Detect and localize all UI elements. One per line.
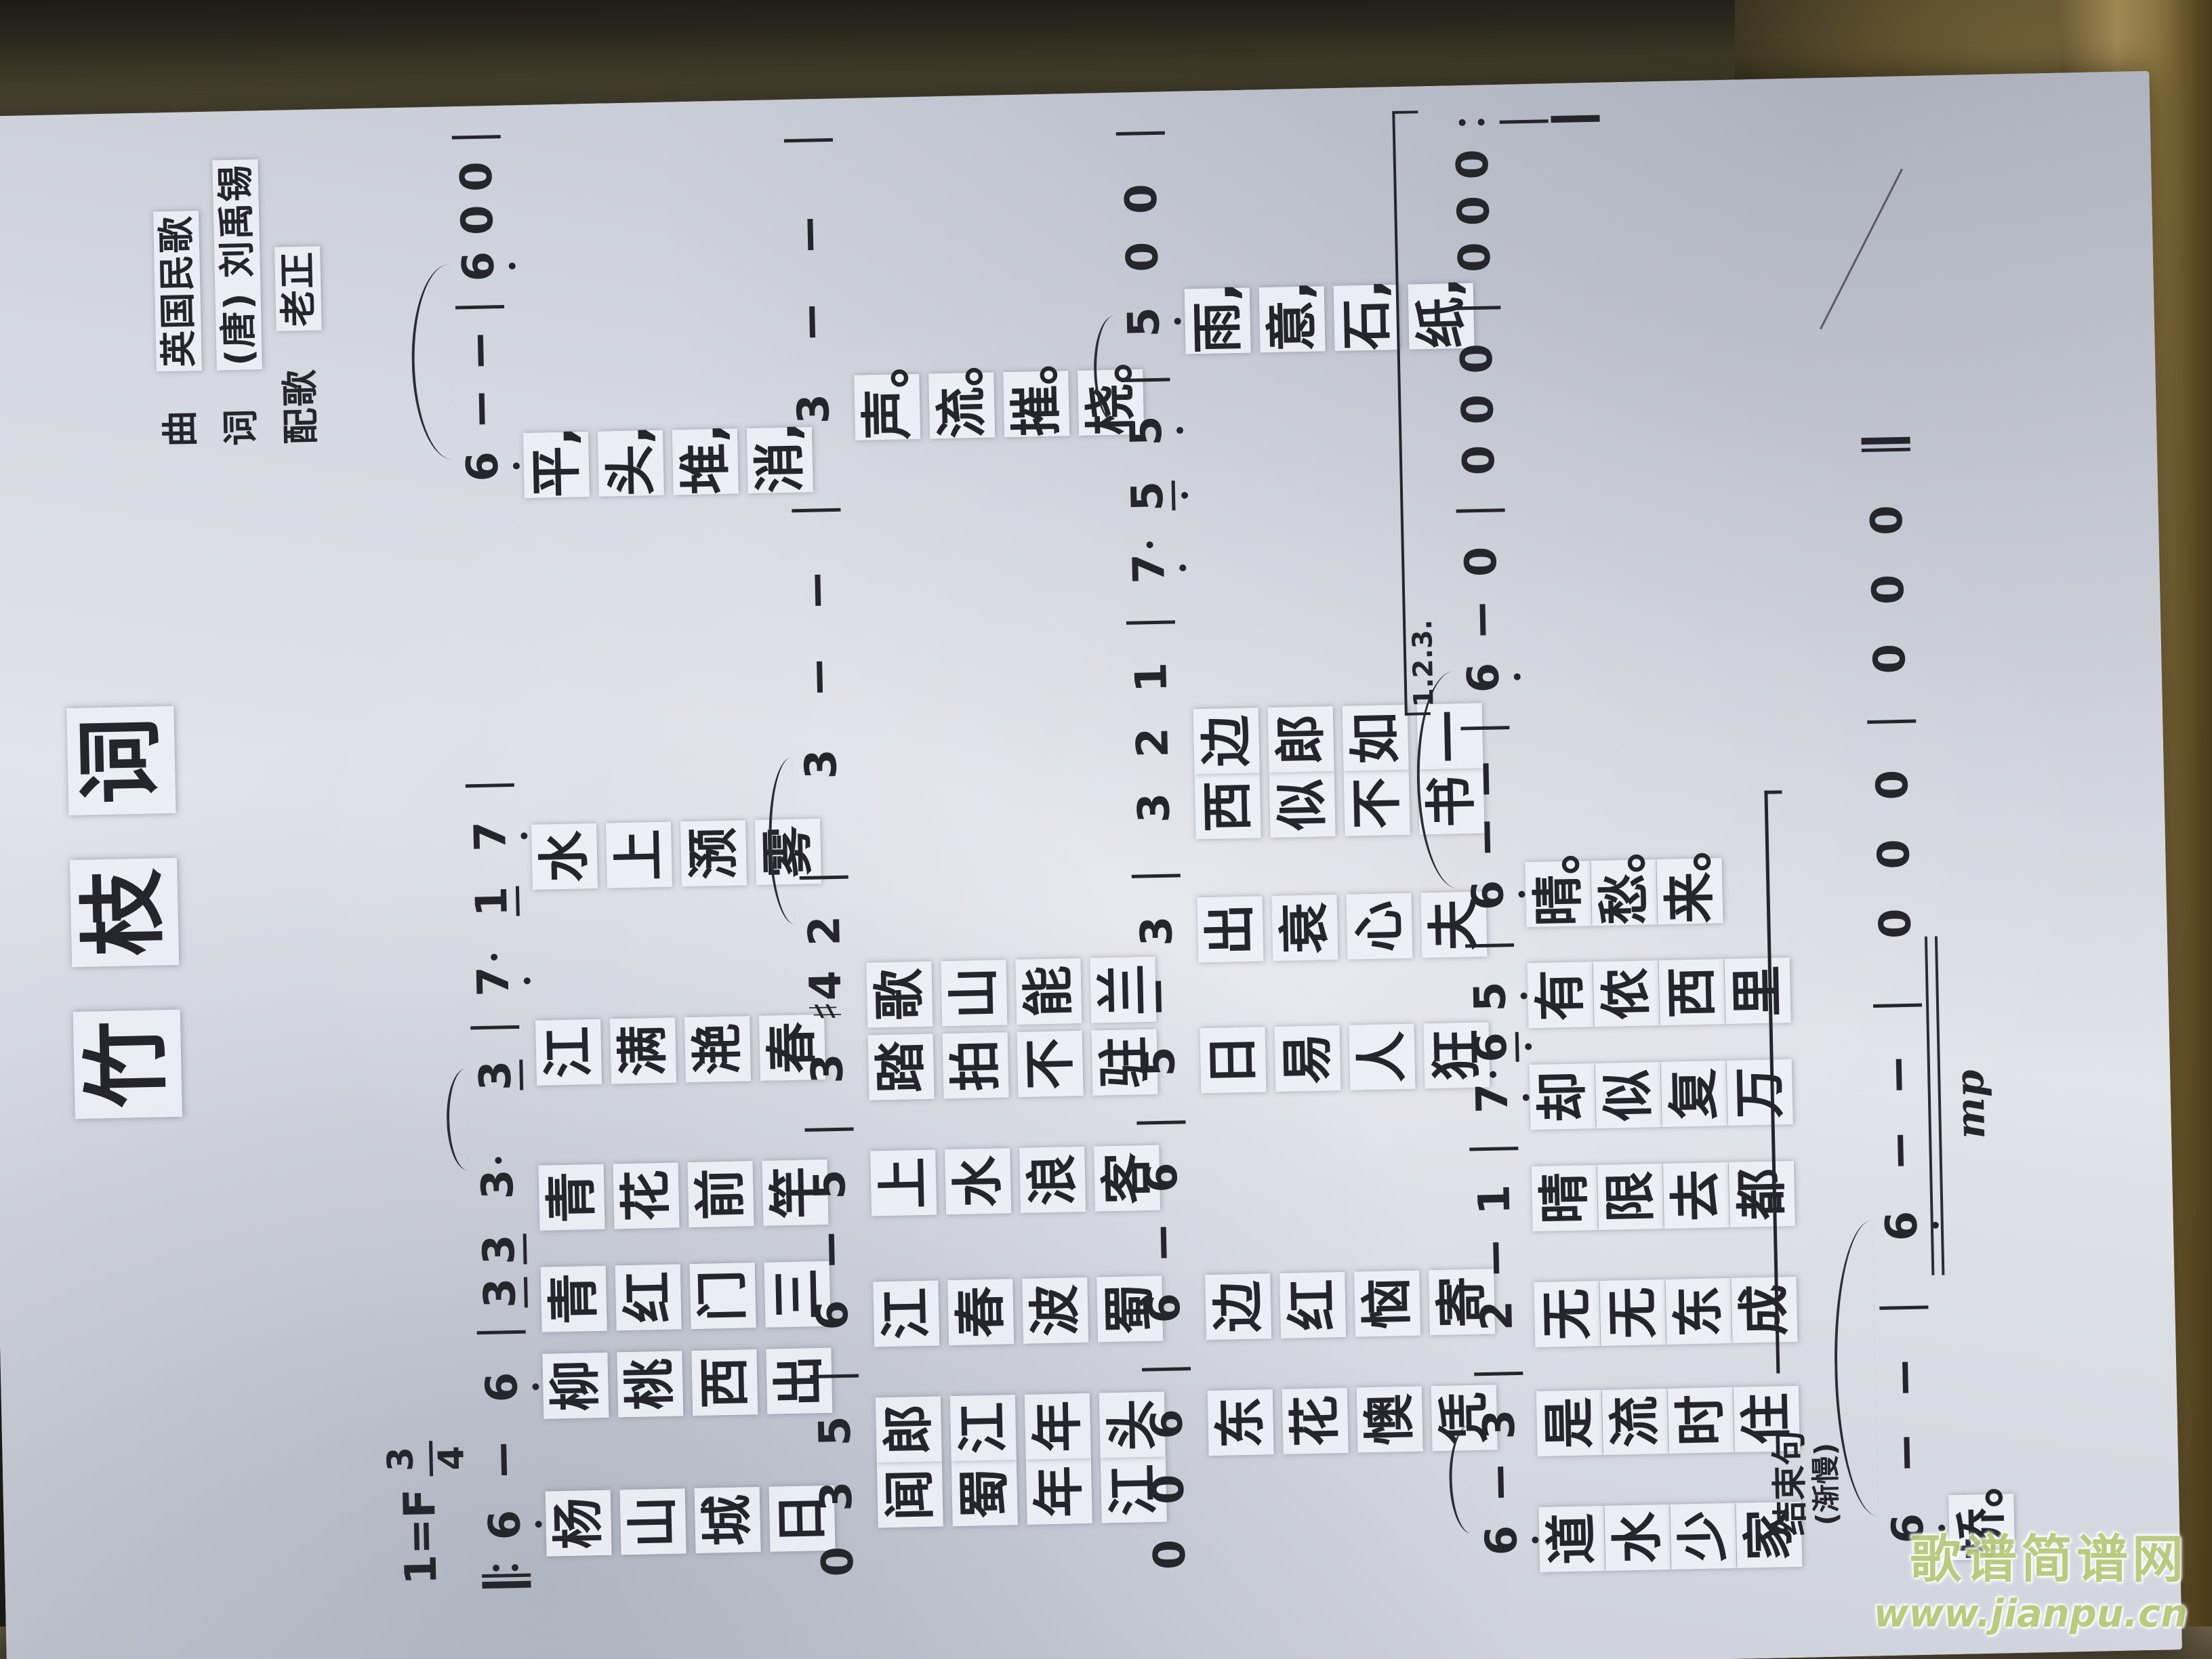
credit-line: 词 (唐) 刘禹锡 [204,127,264,447]
lyric-char: 晴 [1532,1165,1598,1231]
lyric-char: 限 [1597,1164,1664,1230]
barline [1467,1145,1521,1153]
note-7: 7 [1122,553,1177,584]
lyric-char: 有 [1528,962,1594,1029]
note-7: 7 [464,821,518,852]
lyric-char: 声。 [854,374,920,441]
music-system: 1.2.3.6321765660000000道水少家是流时住无无东成晴限去都却似… [1445,105,1855,1563]
lyric-char: 西 [1195,773,1261,840]
note-6: 6 [1140,1408,1195,1439]
lyric-char: 波 [1022,1277,1088,1344]
note-3: 3 [473,1277,528,1309]
lyric-char: 恼 [1354,1270,1420,1336]
lyric-char: 年 [1026,1458,1092,1525]
note-1: 1 [1467,1184,1522,1215]
lyric-char: 成 [1731,1277,1797,1343]
duration-dash [1136,1227,1191,1259]
barline [468,1023,522,1032]
sheet-paper: 竹枝词 曲 英国民歌词 (唐) 刘禹锡配歌 老正 1=F34 663333717… [0,71,2182,1659]
rest-note: 0 [451,205,506,236]
note-3: 3 [468,1060,523,1091]
key-time-signature: 1=F34 [373,1440,472,1586]
note-5: 5 [803,1169,858,1200]
rest-note: 0 [1451,394,1506,425]
lyric-char: 都 [1729,1161,1795,1227]
lyric-char: 西 [1659,959,1725,1025]
volta-label: 1.2.3. [1407,619,1440,708]
lyric-char: 晴。 [1525,861,1591,927]
note-2: 2 [1470,1300,1525,1331]
credit-value: 英国民歌 [153,211,202,371]
key-signature: 1=F [395,1488,447,1585]
lyric-char: 前 [688,1161,754,1227]
lyric-char: 能 [1015,958,1082,1025]
lyric-char: 踏 [868,1034,935,1101]
note-5: 5 [1120,415,1174,447]
dynamic-marking: mp [1946,1069,1994,1139]
rest-note: 0 [1115,241,1170,272]
note-2: 2 [798,915,853,946]
barline [463,781,517,790]
note-5: 5 [1463,981,1518,1012]
music-system: 66000000桥。 [1856,286,2212,1554]
barline [1449,304,1503,312]
rest-note: 0 [1862,574,1917,605]
lyric-char: 红 [615,1264,682,1330]
note-5: 5 [1121,480,1176,512]
duration-dash [1460,821,1515,854]
lyric-char: 东 [1665,1278,1732,1345]
lyric-char: 似 [1269,772,1336,838]
lyric-char: 如 [1343,705,1409,771]
rest-note: 0 [811,1546,865,1577]
duration-dash [476,1443,531,1476]
barline [474,1328,529,1336]
title-char: 竹 [73,1010,182,1119]
rest-note: 0 [1448,241,1502,272]
credit-label: 配歌 [278,330,323,445]
watermark-site-name: 歌谱简谱网 [1874,1517,2188,1592]
note-6: 6 [806,1299,861,1330]
lyric-char: 无 [1599,1279,1666,1346]
barline [1870,1001,1925,1010]
photo-frame: 竹枝词 曲 英国民歌词 (唐) 刘禹锡配歌 老正 1=F34 663333717… [0,0,2212,1659]
lyric-char: 春 [947,1279,1014,1345]
lyric-char: 花 [613,1162,680,1229]
note-3: 3 [787,393,842,424]
duration-dash [1456,604,1511,636]
note-3: 3 [1472,1409,1527,1440]
lyric-char: 易 [1275,1025,1341,1092]
lyric-char: 青 [539,1164,605,1231]
lyric-char: 滪 [680,820,747,886]
barline [453,303,507,312]
note-♯4: ♯4 [799,970,855,1022]
duration-dash [1473,1467,1528,1499]
lyric-char: 郎 [1268,706,1334,773]
credits-block: 曲 英国民歌词 (唐) 刘禹锡配歌 老正 [144,125,331,447]
lyric-char: 似 [1595,1062,1662,1128]
barline [1864,718,1919,726]
lyric-char: 时 [1668,1387,1734,1454]
lyric-char: 流 [1602,1389,1668,1455]
lyric-char: 满 [610,1017,676,1084]
barline [789,506,843,515]
lyric-char: 却 [1530,1063,1596,1130]
rest-note: 0 [1452,445,1507,476]
barline [1124,618,1178,627]
begin-repeat-barline [479,1563,534,1591]
lyric-char: 水 [945,1148,1011,1214]
title-char: 枝 [70,858,179,967]
duration-dash [455,392,510,425]
lyric-char: 山 [620,1489,687,1555]
credit-line: 曲 英国民歌 [144,128,204,448]
note-1: 1 [1124,661,1179,693]
lyric-char: 无 [1534,1281,1600,1347]
barline [1462,941,1517,950]
lyric-char: 复 [1661,1061,1727,1127]
credit-label: 词 [218,369,262,446]
barline [1113,129,1168,138]
slur [446,1069,468,1170]
rest-note: 0 [1141,1474,1196,1505]
lyric-char: 人 [1349,1024,1415,1090]
lyric-char: 红 [1279,1272,1346,1338]
duration-dash [1873,1134,1928,1167]
lyric-char: 衰 [1271,895,1338,961]
lyric-char: 柳 [542,1353,609,1419]
barline [1134,1118,1188,1127]
barline [1139,1365,1193,1374]
credit-label: 曲 [158,371,202,447]
lyric-char: 流。 [928,373,995,439]
note-6: 6 [1456,662,1511,693]
lyric-char: 出 [1197,897,1263,963]
rest-note: 0 [1447,195,1502,226]
duration-dash [785,306,840,338]
lyric-char: 东 [1208,1389,1274,1456]
lyric-char: 滟 [684,1016,751,1082]
time-signature-numerator: 3 [373,1441,433,1477]
site-watermark: 歌谱简谱网 www.jianpu.cn [1874,1517,2188,1636]
note-5: 5 [1117,306,1172,337]
rest-note: 0 [1867,838,1922,869]
rest-note: 0 [1446,149,1500,180]
lyric-char: 少 [1670,1503,1736,1570]
time-signature: 34 [373,1440,470,1477]
note-5: 5 [808,1416,863,1447]
credit-value: 老正 [274,246,322,331]
credit-line: 配歌 老正 [264,125,325,445]
lyric-char: 水 [1604,1504,1671,1571]
note-3: 3 [800,1053,855,1084]
rest-note: 0 [1866,769,1921,800]
final-barline [1858,435,1913,455]
duration-dash [783,219,838,251]
barline [1471,1370,1525,1378]
lyric-char: 不 [1017,1031,1084,1097]
barline [781,136,836,145]
end-repeat-barline [1445,115,1499,127]
coda-tempo-text: (渐慢) [1803,1442,1846,1526]
lyric-char: 意, [1259,286,1326,352]
note-6: 6 [1138,1292,1193,1324]
duration-dash [804,1233,859,1266]
lyric-char: 雨, [1185,287,1251,354]
note-3: 3 [1130,916,1185,947]
rest-note: 0 [1860,505,1915,536]
note-3: 3 [1127,792,1182,823]
note-6: 6 [478,1509,533,1540]
note-6: 6 [1135,1162,1190,1193]
time-signature-denominator: 4 [432,1440,470,1476]
lyric-char: 桃 [617,1351,683,1418]
duration-dash [1469,1242,1523,1274]
lyric-char: 城 [695,1487,761,1553]
title-char: 词 [66,706,176,815]
credit-value: (唐) 刘禹锡 [212,159,262,371]
barline [807,1372,861,1380]
note-2: 2 [1126,727,1181,758]
lyric-char: 边 [1193,708,1260,775]
lyric-char: 闻 [877,1462,943,1528]
barline [1458,724,1512,733]
lyric-char: 花 [1282,1388,1349,1454]
lyric-char: 水 [531,823,598,890]
lyric-char: 日 [1200,1027,1267,1093]
lyric-char: 侬 [1593,961,1660,1027]
slur [410,264,453,461]
lyric-char: 江 [873,1280,939,1347]
rest-note: 0 [1450,343,1504,374]
rest-note: 0 [1143,1539,1197,1570]
note-7: 7 [466,966,521,997]
barline [1877,1304,1931,1313]
lyric-char: 歌 [866,962,933,1028]
lyric-char: 是 [1536,1390,1603,1456]
lyric-char: 去 [1663,1162,1729,1229]
rest-note: 0 [1114,183,1169,214]
lyric-char: 道 [1538,1506,1605,1572]
lyric-char: 郎 [876,1396,942,1462]
note-6: 6 [1461,880,1516,911]
lyric-char: 江 [535,1019,602,1086]
barline [802,1125,856,1134]
duration-dash [1879,1437,1934,1469]
duration-dash [1872,1059,1927,1091]
note-6: 6 [451,251,506,282]
lyric-char: 上 [870,1150,937,1216]
lyric-char: 头, [598,430,664,497]
note-6: 6 [455,451,510,482]
duration-dash [1878,1361,1933,1393]
duration-dash [453,334,508,367]
lyric-char: 万 [1727,1059,1793,1126]
rest-note: 0 [1868,908,1923,939]
rest-note: 0 [1454,546,1509,577]
barline [1454,507,1508,516]
lyric-char: 石, [1334,285,1400,351]
barline [1129,872,1183,880]
note-3: 3 [809,1481,864,1512]
lyric-char: 西 [691,1349,758,1416]
rest-note: 0 [1863,643,1918,674]
lyric-char: 摧。 [1003,371,1069,437]
lyric-char: 拍 [943,1032,1009,1099]
barline [797,873,851,882]
lyric-char: 边 [1205,1273,1271,1340]
sheet-paper-rotated: 竹枝词 曲 英国民歌词 (唐) 刘禹锡配歌 老正 1=F34 663333717… [0,71,2182,1659]
lyric-char: 浪 [1019,1147,1086,1213]
lyric-char: 杨 [546,1490,612,1557]
note-1: 1 [465,886,520,917]
lyric-char: 门 [690,1263,756,1329]
lyric-char: 来。 [1656,858,1723,924]
lyric-char: 愁。 [1591,859,1657,926]
lyric-char: 上 [606,822,672,888]
note-6: 6 [1475,1525,1530,1556]
note-6: 6 [475,1372,530,1403]
lyric-char: 年 [1025,1393,1091,1460]
note-6: 6 [1465,1031,1519,1063]
note-5: 5 [1132,1046,1187,1077]
lyric-char: 江 [950,1395,1017,1461]
note-3: 3 [471,1168,526,1200]
note-3: 3 [472,1234,527,1265]
lyric-char: 平, [523,432,590,498]
song-title: 竹枝词 [65,642,182,1119]
duration-dash [790,574,845,607]
duration-dash [792,661,847,693]
lyric-char: 里 [1725,958,1791,1024]
note-6: 6 [1875,1210,1929,1242]
lyric-char: 堆, [672,429,739,495]
note-7: 7 [1465,1082,1520,1113]
rest-note: 0 [450,161,505,192]
watermark-site-url: www.jianpu.cn [1874,1592,2188,1636]
lyric-char: 蜀 [951,1460,1018,1526]
duration-dash [1458,763,1513,796]
note-3: 3 [794,748,849,779]
lyric-char: 心 [1346,893,1412,960]
duration-dash [1131,980,1186,1012]
music-systems: 6633337176600杨山城日柳桃西出青红门三青花前竿江满滟春水上滪雾平,头… [0,117,7,1659]
barline [449,133,504,142]
lyric-char: 不 [1344,770,1410,836]
barline [1118,376,1172,385]
lyric-char: 山 [941,960,1007,1026]
lyric-char: 懊 [1357,1387,1423,1453]
lyric-char: 青 [541,1265,607,1332]
